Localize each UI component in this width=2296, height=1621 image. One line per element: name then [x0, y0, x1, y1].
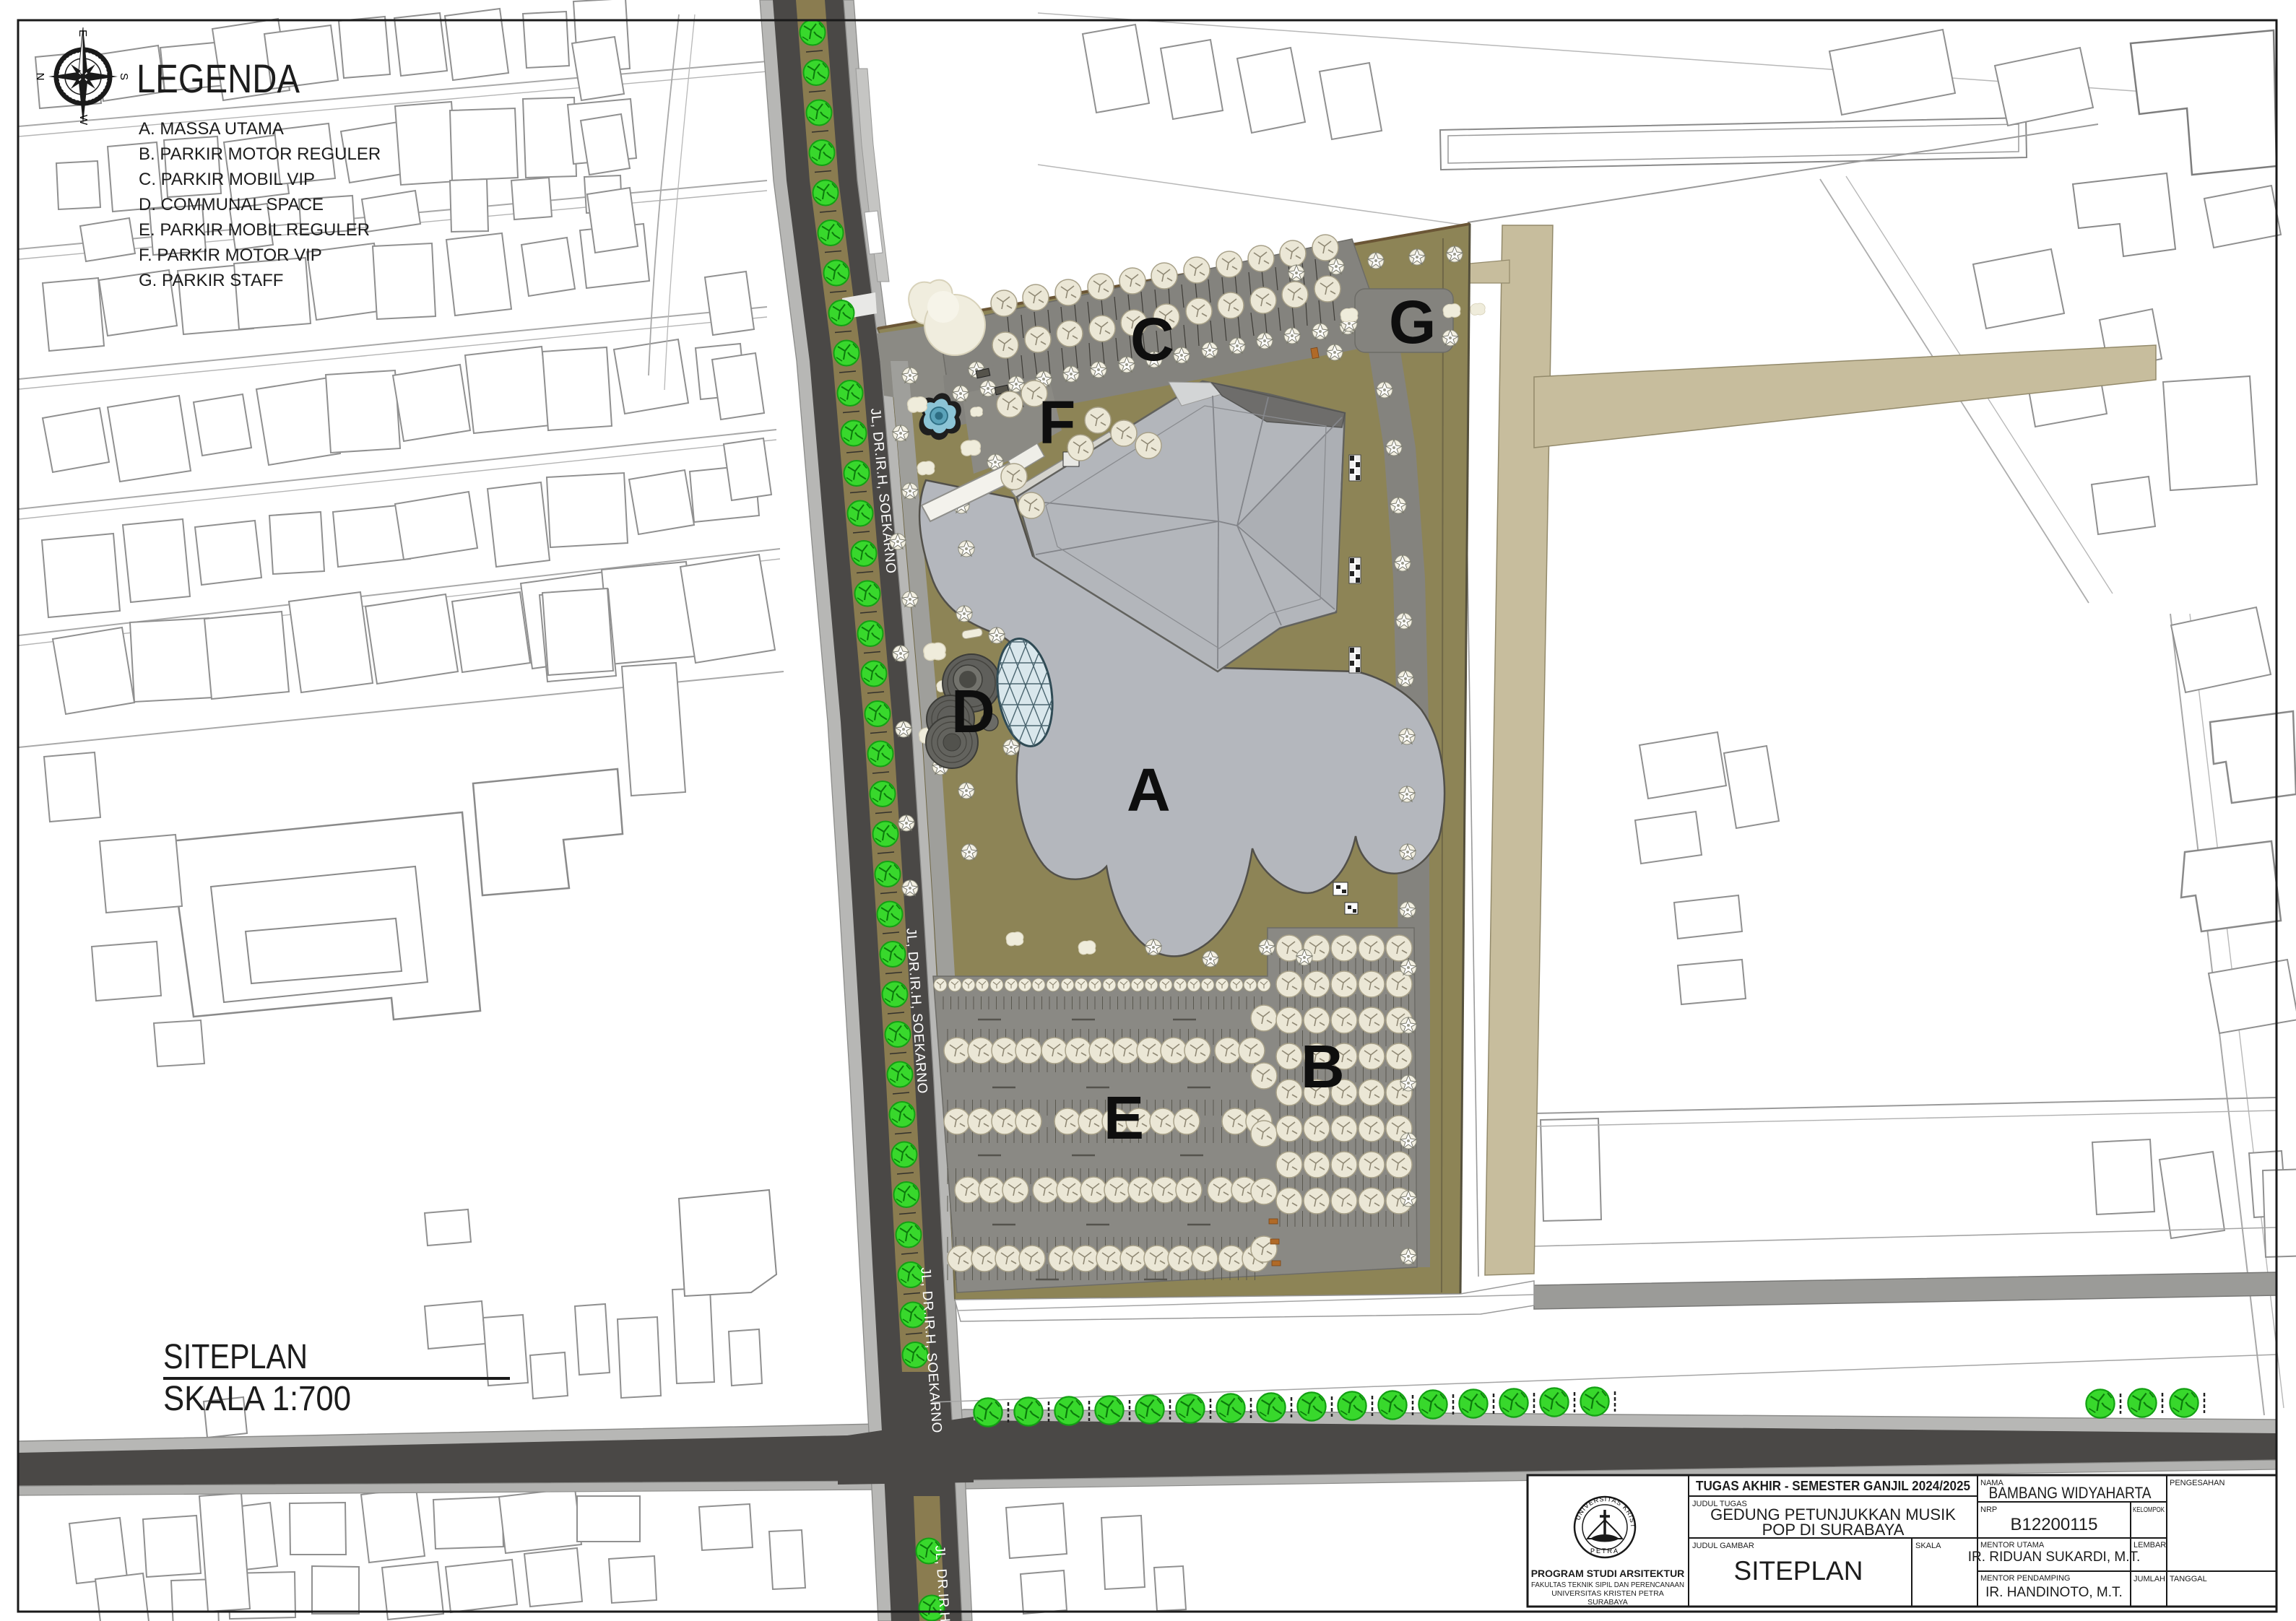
svg-text:SURABAYA: SURABAYA	[1587, 1598, 1628, 1607]
svg-text:B. PARKIR MOTOR REGULER: B. PARKIR MOTOR REGULER	[139, 144, 381, 164]
svg-text:BAMBANG WIDYAHARTA: BAMBANG WIDYAHARTA	[1989, 1484, 2152, 1502]
svg-text:JUDUL GAMBAR: JUDUL GAMBAR	[1692, 1542, 1754, 1550]
svg-text:LEGENDA: LEGENDA	[137, 56, 300, 101]
svg-text:G: G	[1389, 288, 1436, 356]
svg-text:MENTOR UTAMA: MENTOR UTAMA	[1980, 1541, 2045, 1550]
svg-text:W: W	[77, 115, 90, 126]
svg-text:G. PARKIR STAFF: G. PARKIR STAFF	[139, 271, 283, 290]
svg-text:POP DI SURABAYA: POP DI SURABAYA	[1762, 1521, 1905, 1539]
svg-text:B: B	[1301, 1033, 1345, 1100]
svg-text:SKALA 1:700: SKALA 1:700	[163, 1380, 351, 1418]
svg-text:IR. RIDUAN SUKARDI, M.T.: IR. RIDUAN SUKARDI, M.T.	[1968, 1550, 2141, 1565]
svg-text:KELOMPOK: KELOMPOK	[2133, 1506, 2165, 1514]
svg-text:SKALA: SKALA	[1915, 1542, 1941, 1550]
svg-text:E. PARKIR MOBIL REGULER: E. PARKIR MOBIL REGULER	[139, 220, 370, 240]
svg-text:PETRA: PETRA	[1590, 1547, 1619, 1555]
svg-text:C. PARKIR MOBIL VIP: C. PARKIR MOBIL VIP	[139, 170, 315, 189]
svg-text:F: F	[1039, 388, 1075, 456]
svg-text:MENTOR PENDAMPING: MENTOR PENDAMPING	[1980, 1574, 2070, 1583]
svg-text:B12200115: B12200115	[2010, 1515, 2097, 1534]
svg-text:C: C	[1130, 305, 1174, 373]
svg-text:TUGAS AKHIR - SEMESTER GANJIL: TUGAS AKHIR - SEMESTER GANJIL 2024/2025	[1696, 1479, 1970, 1493]
svg-text:S: S	[118, 73, 130, 80]
svg-text:F. PARKIR MOTOR VIP: F. PARKIR MOTOR VIP	[139, 245, 322, 265]
svg-text:JUMLAH: JUMLAH	[2133, 1575, 2165, 1583]
svg-text:PENGESAHAN: PENGESAHAN	[2170, 1479, 2224, 1487]
svg-text:N: N	[34, 73, 46, 81]
svg-text:IR. HANDINOTO, M.T.: IR. HANDINOTO, M.T.	[1985, 1585, 2123, 1600]
svg-text:PROGRAM STUDI ARSITEKTUR: PROGRAM STUDI ARSITEKTUR	[1531, 1568, 1685, 1579]
svg-text:LEMBAR: LEMBAR	[2133, 1541, 2166, 1550]
svg-text:A. MASSA UTAMA: A. MASSA UTAMA	[139, 119, 284, 139]
svg-text:NRP: NRP	[1980, 1505, 1997, 1514]
svg-text:E: E	[1104, 1084, 1144, 1152]
svg-text:E: E	[77, 30, 89, 37]
svg-text:FAKULTAS TEKNIK SIPIL DAN PERE: FAKULTAS TEKNIK SIPIL DAN PERENCANAAN	[1531, 1581, 1684, 1589]
svg-text:D: D	[951, 677, 995, 745]
svg-text:SITEPLAN: SITEPLAN	[163, 1338, 308, 1376]
svg-text:D. COMMUNAL SPACE: D. COMMUNAL SPACE	[139, 195, 324, 214]
svg-text:SITEPLAN: SITEPLAN	[1734, 1556, 1863, 1586]
svg-text:A: A	[1127, 756, 1171, 824]
svg-text:TANGGAL: TANGGAL	[2170, 1575, 2207, 1583]
svg-text:UNIVERSITAS KRISTEN PETRA: UNIVERSITAS KRISTEN PETRA	[1551, 1589, 1664, 1598]
